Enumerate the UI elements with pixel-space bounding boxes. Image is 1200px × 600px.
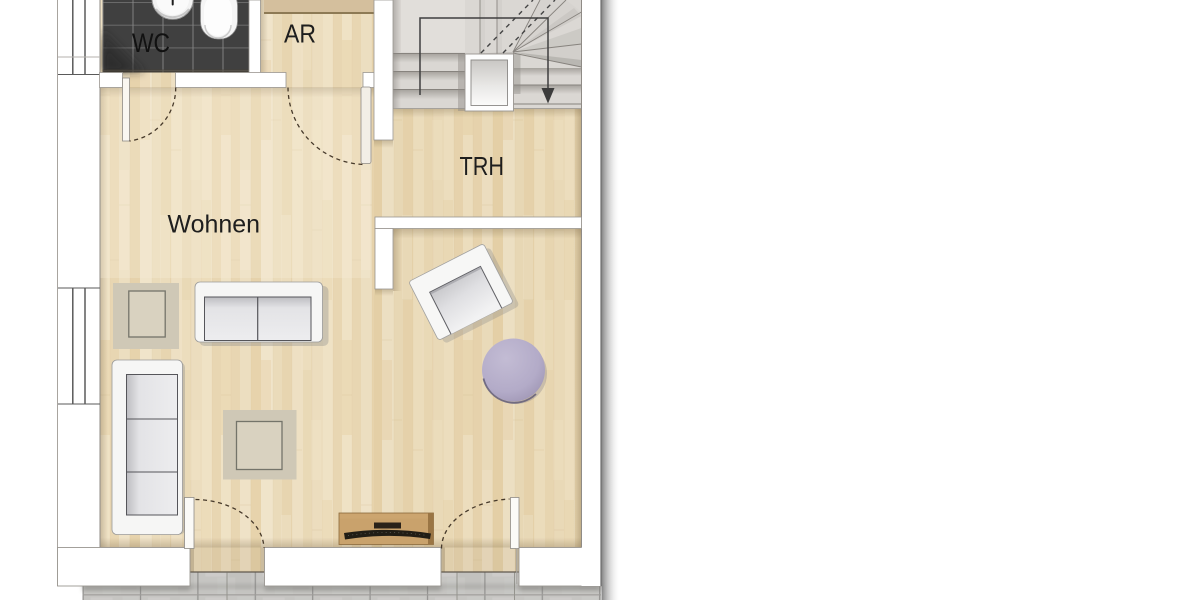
svg-text:WC: WC (132, 28, 170, 58)
svg-text:Wohnen: Wohnen (168, 211, 261, 239)
svg-text:TRH: TRH (460, 151, 505, 181)
svg-text:AR: AR (284, 19, 316, 49)
